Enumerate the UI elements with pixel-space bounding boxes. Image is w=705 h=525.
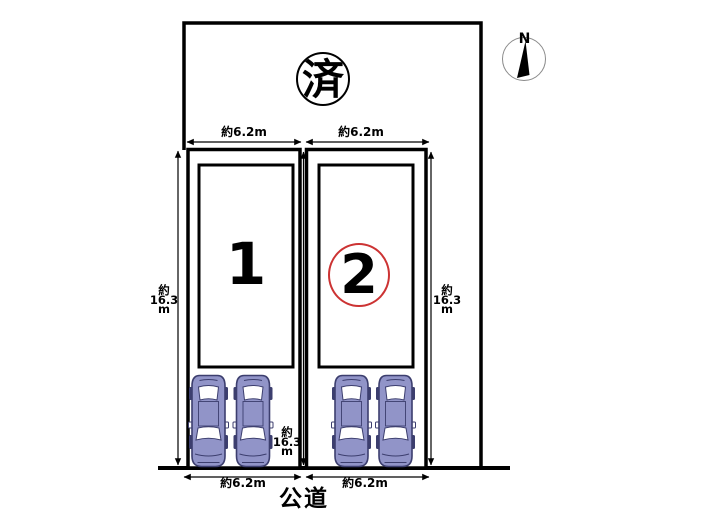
depth-label-center: 約 16.3 m [270,428,304,457]
plot-2-number-circle: 2 [328,243,390,307]
width-label-top-plot-1: 約6.2m [214,126,274,139]
width-label-top-plot-2: 約6.2m [331,126,391,139]
width-label-bottom-plot-2: 約6.2m [335,477,395,490]
road-label: 公道 [267,479,341,513]
depth-label-left: 約 16.3 m [146,286,182,315]
plot-1-number: 1 [211,229,281,299]
car-icon [189,376,229,467]
car-icon [233,376,273,467]
width-label-bottom-plot-1: 約6.2m [213,477,273,490]
depth-label-right: 約 16.3 m [429,286,465,315]
sold-mark-badge: 済 [296,52,350,106]
north-label: N [512,31,537,47]
sold-mark-text: 済 [302,55,344,104]
plot-2-number: 2 [340,243,378,306]
car-icon [332,376,372,467]
plot-layout-diagram: 済 N 約6.2m 約6.2m 1 2 約 16.3 m 約 16.3 m 約 … [0,0,705,525]
car-icon [376,376,416,467]
